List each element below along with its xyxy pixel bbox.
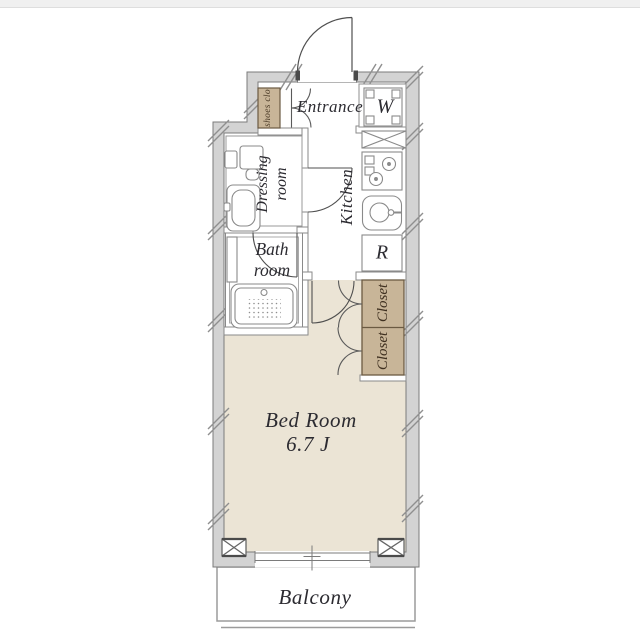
bedroom-size-label: 6.7 J (286, 433, 330, 455)
refrigerator-label: R (376, 243, 388, 264)
entrance-door (296, 18, 359, 84)
door-jamb-right (354, 71, 359, 81)
washer-label: W (377, 97, 394, 118)
closet-upper-label: Closet (376, 284, 392, 322)
shaft-box-right (378, 539, 404, 556)
kitchen-sink-icon (363, 196, 402, 230)
bath-counter (227, 237, 237, 282)
bedroom-label: Bed Room (265, 409, 357, 431)
entrance-label: Entrance (297, 98, 363, 116)
kitchen-shelf-icon (362, 131, 406, 148)
balcony-label: Balcony (278, 586, 351, 608)
shaft-box-left (222, 539, 246, 556)
stove-icon (362, 152, 402, 190)
closet-lower-label: Closet (376, 332, 392, 370)
kitchen-label: Kitchen (338, 169, 356, 225)
dressing-room-label: Dressing room (253, 155, 291, 212)
bathtub-icon (231, 284, 297, 328)
floor-plan-image: Entrance W shoes clo Dressing room Kitch… (0, 0, 640, 630)
bath-room-label: Bath room (254, 239, 290, 281)
shoes-closet-label: shoes clo (264, 89, 274, 127)
floor-plan-drawing (0, 0, 640, 630)
entrance-door-swing (298, 18, 353, 73)
